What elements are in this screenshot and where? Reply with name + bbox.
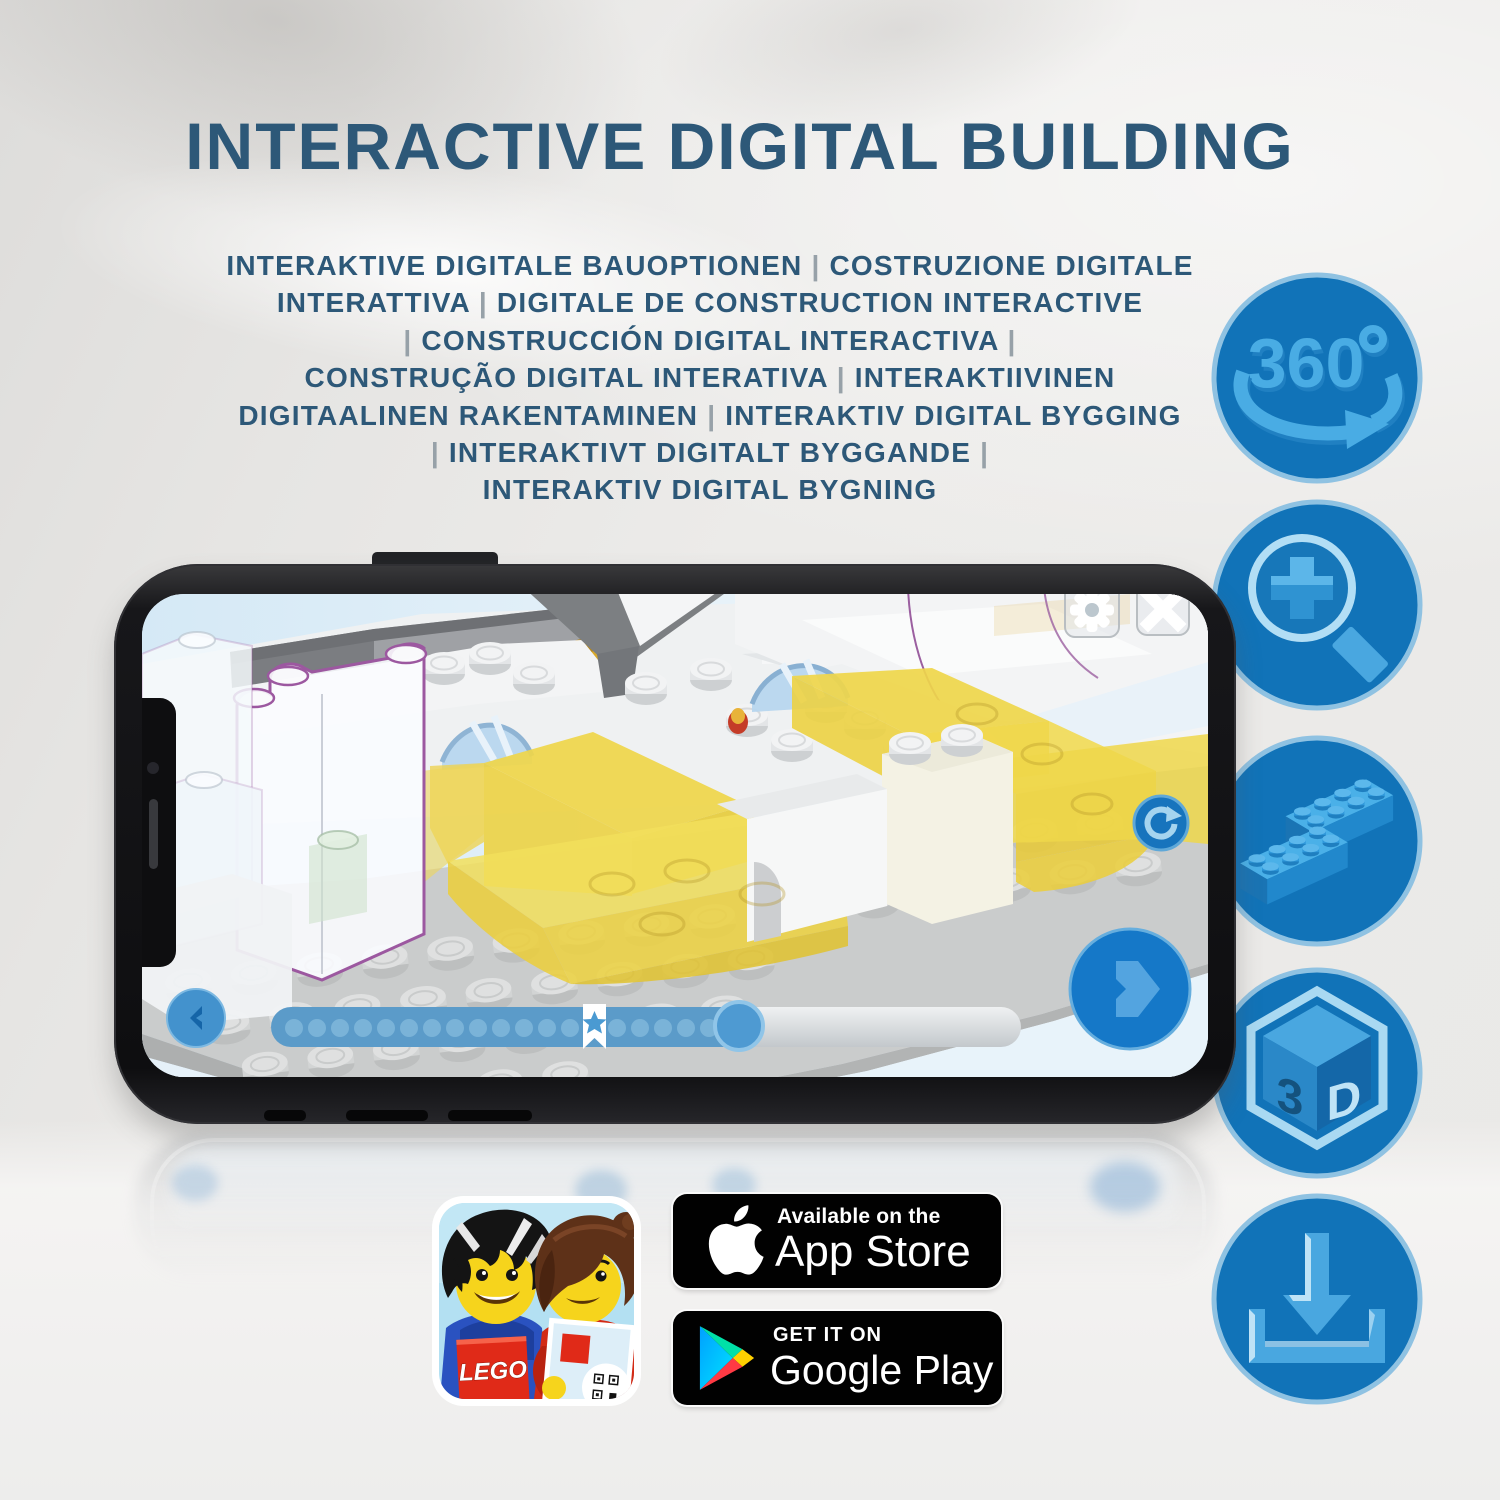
svg-text:3: 3 <box>1277 1067 1304 1128</box>
svg-text:LEGO: LEGO <box>458 1356 528 1387</box>
svg-text:D: D <box>1327 1069 1362 1132</box>
svg-text:360: 360 <box>1248 324 1365 402</box>
